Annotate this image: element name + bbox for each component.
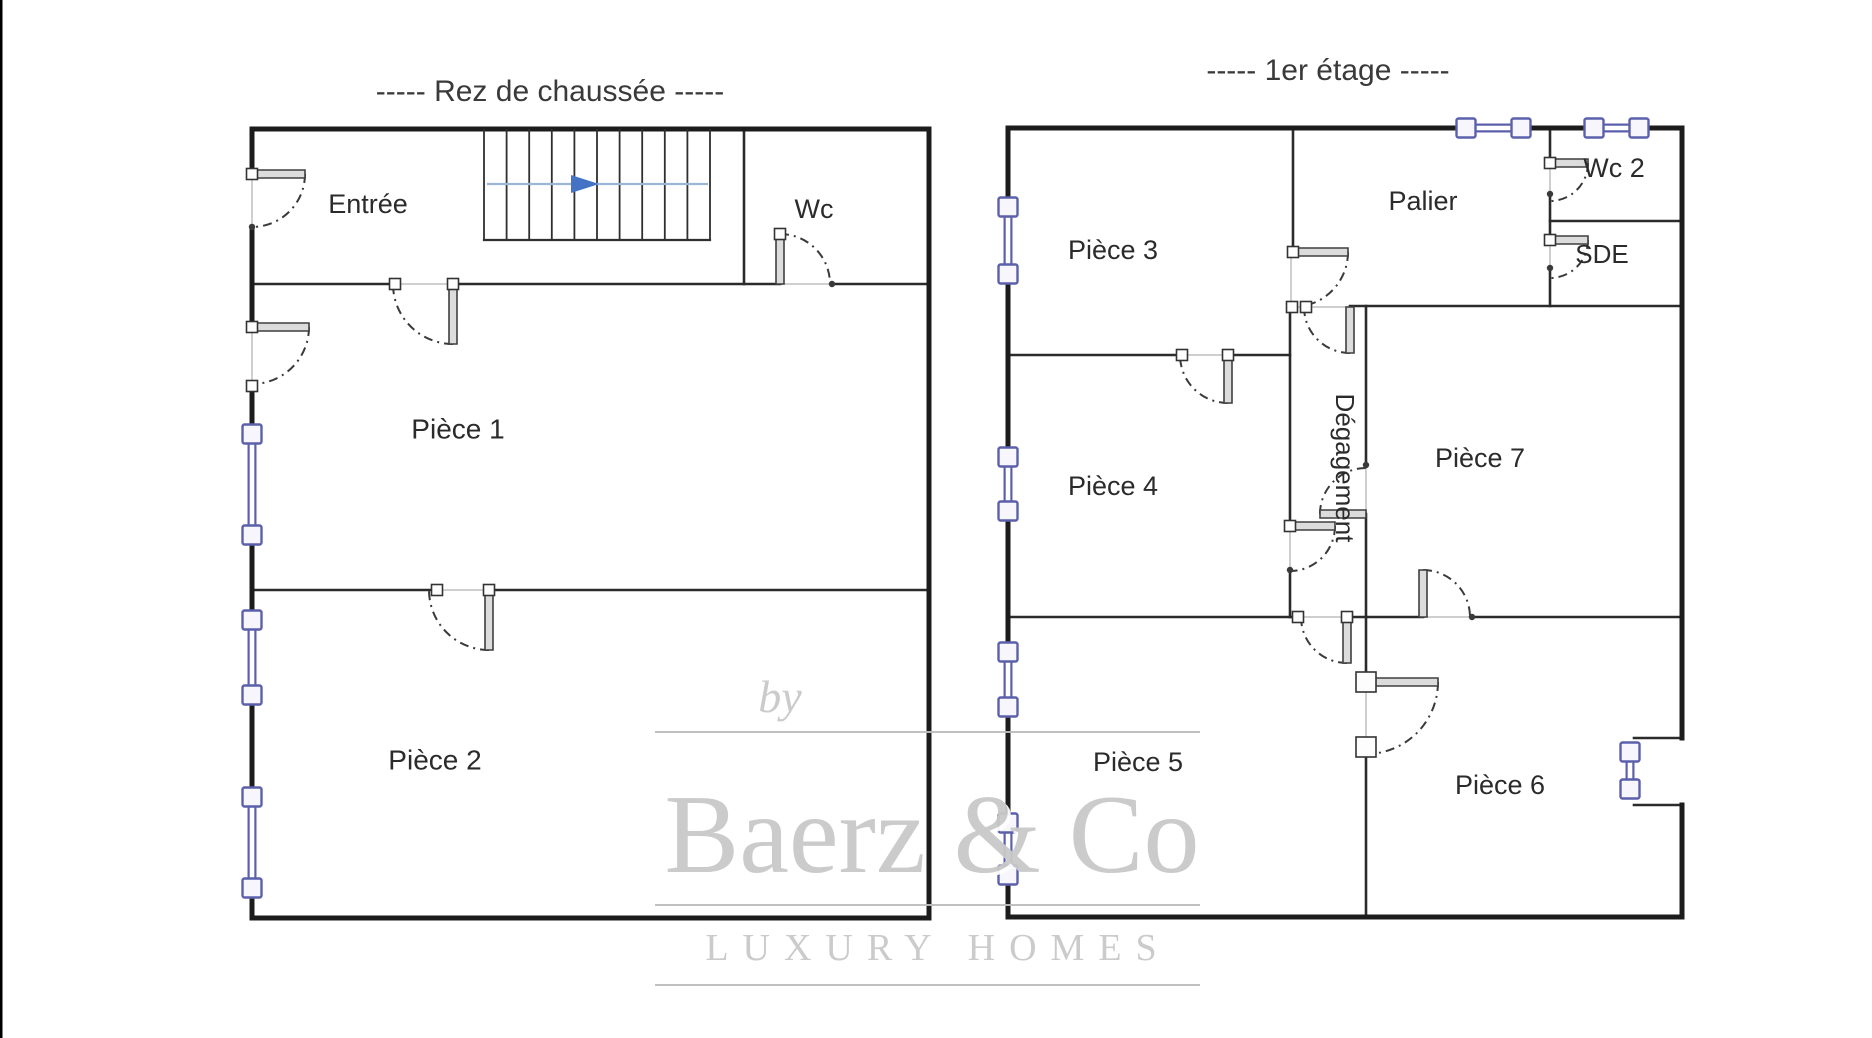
door-jamb-square <box>1301 302 1312 313</box>
wc2-door <box>1545 158 1589 202</box>
room-label-piece-7: Pièce 7 <box>1435 443 1525 473</box>
window-jamb-square <box>999 448 1018 467</box>
window-jamb-square <box>999 502 1018 521</box>
floor-title-etage1: ----- 1er étage ----- <box>1206 54 1449 87</box>
piece1-left-door <box>247 322 310 392</box>
window-jamb-square <box>1621 743 1640 762</box>
watermark-main-text: Baerz & Co <box>665 773 1200 897</box>
piece1-piece2-door <box>429 585 495 651</box>
door-jamb-square <box>432 585 443 596</box>
door-leaf <box>252 170 305 178</box>
door-jamb-square <box>1545 158 1556 169</box>
door-leaf <box>252 323 309 331</box>
door-leaf <box>1366 678 1438 686</box>
door-swing-arc <box>393 284 453 344</box>
piece3-door <box>1177 350 1234 404</box>
entree-piece1-door <box>390 279 459 345</box>
wc-door <box>775 229 836 288</box>
door-swing-arc <box>252 327 309 384</box>
room-label-palier: Palier <box>1388 186 1457 216</box>
window-jamb-square <box>999 698 1018 717</box>
room-label-wc-2: Wc 2 <box>1583 153 1645 183</box>
door-jamb-dot <box>1363 462 1369 468</box>
window-jamb-square <box>243 879 262 898</box>
door-leaf <box>1419 570 1427 617</box>
door-jamb-dot <box>1547 265 1553 271</box>
door-swing-arc <box>780 234 830 284</box>
window-jamb-square <box>243 526 262 545</box>
room-label-degagement: Dégagement <box>1330 394 1360 544</box>
degagement-top-door <box>1287 302 1355 354</box>
door-jamb-square <box>484 585 495 596</box>
piece5-piece6-door <box>1356 672 1438 757</box>
door-jamb-square <box>1293 612 1304 623</box>
door-leaf <box>1224 355 1232 403</box>
rdc-window-2 <box>243 611 262 705</box>
room-label-piece-1: Pièce 1 <box>411 413 504 444</box>
door-swing-arc <box>1180 355 1228 403</box>
watermark-by-text: by <box>758 671 802 722</box>
window-jamb-square <box>999 265 1018 284</box>
door-jamb-square <box>1356 672 1376 692</box>
stairs-direction-arrow-icon <box>571 175 599 193</box>
room-label-entree: Entrée <box>328 189 408 219</box>
door-swing-arc <box>1293 252 1348 307</box>
door-jamb-square <box>247 322 258 333</box>
door-jamb-square <box>247 381 258 392</box>
rdc-window-1 <box>243 425 262 545</box>
degagement-piece5-door <box>1293 612 1353 664</box>
entree-door <box>247 169 306 231</box>
rdc-window-3 <box>243 788 262 898</box>
door-swing-arc <box>429 590 489 650</box>
room-label-wc: Wc <box>795 194 834 224</box>
door-jamb-square <box>1285 521 1296 532</box>
et1-window-3 <box>999 643 1018 717</box>
door-jamb-square <box>1223 350 1234 361</box>
door-jamb-square <box>448 279 459 290</box>
palier-degagement-door <box>1288 247 1349 308</box>
floor-plan-page: EntréeWcPièce 1Pièce 2----- Rez de chaus… <box>0 0 1872 1038</box>
door-swing-arc <box>1290 526 1335 571</box>
door-jamb-square <box>390 279 401 290</box>
room-label-sde: SDE <box>1575 239 1628 269</box>
piece6-window <box>1621 743 1640 799</box>
watermark-sub-text: LUXURY HOMES <box>705 927 1170 969</box>
door-leaf <box>1346 307 1354 353</box>
window-jamb-square <box>1512 119 1531 138</box>
door-leaf <box>1343 617 1351 663</box>
door-jamb-dot <box>1287 567 1293 573</box>
window-jamb-square <box>999 643 1018 662</box>
door-leaf <box>1293 248 1348 256</box>
door-jamb-dot <box>249 224 255 230</box>
piece7-piece6-door <box>1419 570 1475 620</box>
window-jamb-square <box>1585 119 1604 138</box>
floor-title-rdc: ----- Rez de chaussée ----- <box>376 75 724 108</box>
door-swing-arc <box>1301 617 1347 663</box>
room-label-piece-4: Pièce 4 <box>1068 471 1158 501</box>
piece4-degagement-door <box>1285 521 1336 574</box>
et1-window-1 <box>999 198 1018 284</box>
door-jamb-square <box>1177 350 1188 361</box>
et1-top-window-2 <box>1585 119 1649 138</box>
door-leaf <box>449 284 457 344</box>
et1-top-window-1 <box>1457 119 1531 138</box>
room-label-piece-3: Pièce 3 <box>1068 235 1158 265</box>
window-jamb-square <box>243 788 262 807</box>
et1-window-2 <box>999 448 1018 521</box>
staircase <box>484 129 710 240</box>
door-jamb-square <box>1287 302 1298 313</box>
door-swing-arc <box>1366 682 1438 754</box>
door-swing-arc <box>1304 307 1350 353</box>
door-jamb-square <box>1545 235 1556 246</box>
door-swing-arc <box>252 174 305 227</box>
door-jamb-dot <box>1547 191 1553 197</box>
door-leaf <box>1290 522 1335 530</box>
door-jamb-square <box>1288 247 1299 258</box>
window-jamb-square <box>1630 119 1649 138</box>
window-jamb-square <box>243 686 262 705</box>
window-jamb-square <box>1621 780 1640 799</box>
door-jamb-square <box>247 169 258 180</box>
window-jamb-square <box>243 425 262 444</box>
floor-plan-canvas: EntréeWcPièce 1Pièce 2----- Rez de chaus… <box>0 0 1872 1038</box>
door-jamb-square <box>1356 737 1376 757</box>
door-jamb-square <box>775 229 786 240</box>
door-swing-arc <box>1423 570 1470 617</box>
window-jamb-square <box>243 611 262 630</box>
door-jamb-square <box>1342 612 1353 623</box>
room-label-piece-2: Pièce 2 <box>388 744 481 775</box>
window-jamb-square <box>1457 119 1476 138</box>
door-jamb-dot <box>829 281 835 287</box>
window-jamb-square <box>999 198 1018 217</box>
room-label-piece-6: Pièce 6 <box>1455 770 1545 800</box>
door-leaf <box>776 234 784 284</box>
door-jamb-dot <box>1469 614 1475 620</box>
door-leaf <box>485 590 493 650</box>
